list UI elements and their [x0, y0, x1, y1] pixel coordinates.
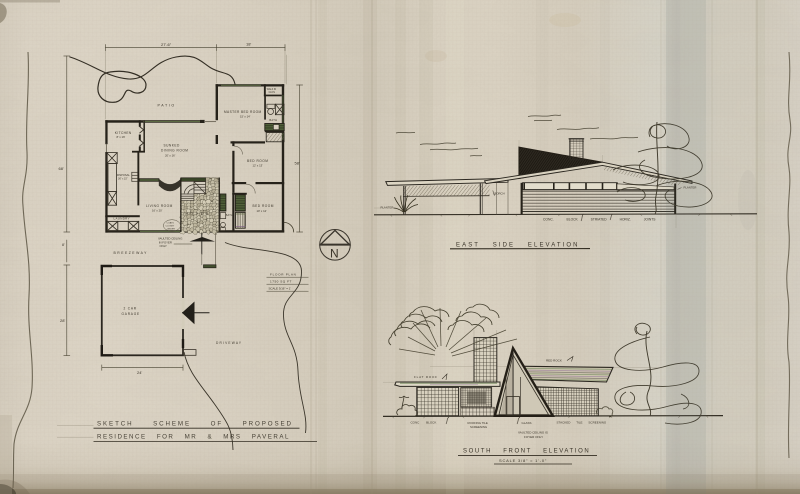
svg-text:28': 28': [60, 318, 65, 323]
svg-text:N: N: [330, 247, 339, 261]
svg-text:ONLY: ONLY: [160, 244, 168, 248]
svg-text:RESIDENCE FOR MR & MRS PAVER: RESIDENCE FOR MR & MRS PAVERAL: [97, 434, 290, 441]
svg-text:LIVING ROOM: LIVING ROOM: [146, 204, 173, 208]
svg-text:36" x 15": 36" x 15": [118, 177, 128, 180]
svg-text:SOUTH FRONT ELEVATION: SOUTH FRONT ELEVATION: [463, 448, 590, 454]
svg-text:DISPOSAL: DISPOSAL: [117, 173, 131, 177]
svg-text:DRIVEWAY: DRIVEWAY: [216, 341, 242, 345]
svg-text:COATS: COATS: [167, 222, 175, 225]
svg-text:58': 58': [295, 161, 300, 166]
svg-text:STACKED TILE SCREENING: STACKED TILE SCREENING: [557, 420, 607, 424]
svg-text:GARAGE: GARAGE: [122, 312, 140, 316]
svg-text:RED ROCK: RED ROCK: [546, 359, 562, 363]
svg-text:20' x 16': 20' x 16': [165, 153, 176, 157]
svg-text:LAUNDRY: LAUNDRY: [114, 217, 130, 221]
svg-text:8': 8': [62, 243, 65, 247]
svg-text:BATH: BATH: [226, 213, 234, 217]
svg-text:MASTER BED ROOM: MASTER BED ROOM: [224, 110, 262, 114]
svg-text:CONC. BLOCK STRIATED HORIZ: CONC. BLOCK STRIATED HORIZ. JOINTS: [543, 217, 656, 221]
svg-text:BREEZEWAY: BREEZEWAY: [114, 251, 148, 255]
svg-text:CONC BLOCK: CONC BLOCK: [411, 421, 437, 425]
svg-text:SCALE 3/16" = 1': SCALE 3/16" = 1': [269, 287, 292, 291]
svg-text:1750 SQ FT: 1750 SQ FT: [270, 280, 292, 284]
svg-text:GLASS: GLASS: [522, 421, 532, 425]
svg-text:18': 18': [246, 42, 251, 47]
svg-text:24': 24': [137, 370, 142, 375]
svg-text:FOYER ONLY: FOYER ONLY: [524, 435, 543, 439]
svg-text:SCREENING: SCREENING: [470, 425, 488, 429]
svg-text:CLOSET: CLOSET: [166, 226, 175, 228]
svg-text:BATH: BATH: [269, 118, 277, 122]
svg-text:12' x 13': 12' x 13': [253, 164, 264, 168]
svg-text:FLOOR PLAN: FLOOR PLAN: [270, 273, 297, 277]
svg-text:CLOS: CLOS: [269, 92, 276, 94]
svg-text:SUNKED: SUNKED: [164, 144, 180, 148]
svg-text:BED ROOM: BED ROOM: [253, 204, 274, 208]
svg-text:SKETCH SCHEME OF PROPOSED: SKETCH SCHEME OF PROPOSED: [97, 421, 293, 428]
svg-text:8' x 16': 8' x 16': [117, 135, 126, 139]
svg-text:15' x 14': 15' x 14': [240, 114, 251, 118]
svg-text:16' x 20': 16' x 20': [152, 209, 163, 213]
svg-text:FLAT ROOF: FLAT ROOF: [414, 375, 438, 379]
svg-text:EAST SIDE ELEVATION: EAST SIDE ELEVATION: [456, 242, 580, 248]
svg-text:PATIO: PATIO: [158, 104, 176, 108]
svg-text:27'-6": 27'-6": [161, 42, 172, 47]
svg-text:BED ROOM: BED ROOM: [247, 159, 268, 163]
svg-text:WALK IN: WALK IN: [267, 88, 277, 91]
svg-text:UNDER: UNDER: [167, 229, 175, 231]
svg-text:FOYER: FOYER: [186, 212, 211, 216]
svg-text:DINING ROOM: DINING ROOM: [161, 149, 188, 153]
svg-text:VAULTED CEILING IS: VAULTED CEILING IS: [518, 430, 548, 434]
svg-text:PORCH: PORCH: [495, 192, 505, 196]
svg-text:PLANTER: PLANTER: [381, 205, 394, 209]
svg-text:10' x 12': 10' x 12': [257, 209, 268, 213]
svg-text:2 CAR: 2 CAR: [124, 307, 137, 311]
svg-text:68': 68': [59, 166, 64, 171]
svg-text:SCALE 3/8" = 1'-0": SCALE 3/8" = 1'-0": [499, 458, 547, 463]
